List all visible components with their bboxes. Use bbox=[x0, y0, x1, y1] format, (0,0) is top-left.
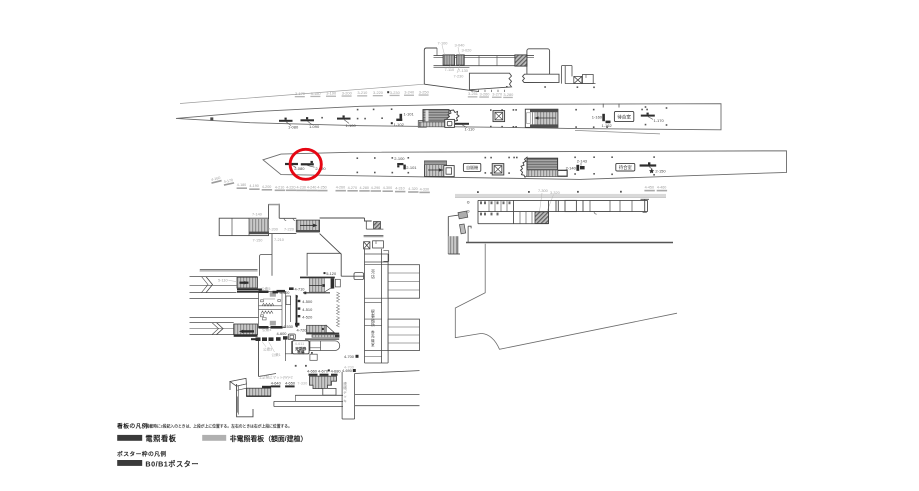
svg-text:4-260: 4-260 bbox=[336, 186, 345, 190]
svg-text:自販機: 自販機 bbox=[466, 164, 478, 170]
svg-text:4-300: 4-300 bbox=[383, 186, 392, 190]
svg-text:5-110: 5-110 bbox=[218, 278, 228, 283]
svg-text:7-110: 7-110 bbox=[445, 67, 455, 72]
svg-text:7-140: 7-140 bbox=[252, 212, 263, 217]
svg-text:非電照看板（額面/建植）: 非電照看板（額面/建植） bbox=[230, 434, 308, 443]
svg-text:4-330: 4-330 bbox=[420, 187, 429, 191]
svg-text:3-180: 3-180 bbox=[311, 91, 322, 96]
svg-text:売店: 売店 bbox=[371, 268, 375, 279]
svg-text:ポスター枠の凡例: ポスター枠の凡例 bbox=[117, 450, 167, 458]
svg-text:4-190: 4-190 bbox=[249, 184, 258, 188]
svg-text:3-170: 3-170 bbox=[295, 91, 306, 96]
svg-text:1-101: 1-101 bbox=[404, 112, 415, 117]
svg-text:4-720: 4-720 bbox=[297, 327, 308, 332]
svg-text:7-130: 7-130 bbox=[458, 68, 469, 73]
svg-text:公衆3: 公衆3 bbox=[263, 347, 272, 352]
svg-text:4-230: 4-230 bbox=[297, 185, 306, 189]
svg-text:4-450: 4-450 bbox=[645, 186, 654, 190]
svg-text:4-270: 4-270 bbox=[348, 186, 357, 190]
svg-text:4-500: 4-500 bbox=[302, 299, 313, 304]
svg-text:3-280: 3-280 bbox=[503, 92, 514, 97]
svg-text:連絡デッキ: 連絡デッキ bbox=[343, 381, 347, 403]
svg-text:待合室: 待合室 bbox=[617, 114, 631, 121]
svg-text:2-150: 2-150 bbox=[655, 169, 666, 174]
svg-text:3-190: 3-190 bbox=[326, 91, 337, 96]
svg-text:1-080: 1-080 bbox=[288, 125, 299, 130]
svg-text:1-170: 1-170 bbox=[654, 118, 665, 123]
svg-text:4-200: 4-200 bbox=[262, 185, 271, 189]
svg-text:7-150: 7-150 bbox=[253, 237, 264, 242]
svg-text:看板の凡例: 看板の凡例 bbox=[117, 422, 148, 430]
svg-text:4-710: 4-710 bbox=[295, 286, 306, 291]
svg-text:券売機室: 券売機室 bbox=[371, 330, 375, 348]
svg-text:7-200: 7-200 bbox=[268, 227, 279, 232]
svg-text:2-140: 2-140 bbox=[566, 166, 577, 171]
svg-text:4-280: 4-280 bbox=[360, 186, 369, 190]
svg-text:3-251: 3-251 bbox=[468, 91, 478, 96]
svg-text:4-310: 4-310 bbox=[395, 187, 404, 191]
svg-text:7-230: 7-230 bbox=[454, 74, 465, 79]
svg-text:7-210: 7-210 bbox=[274, 237, 285, 242]
svg-text:3-210: 3-210 bbox=[357, 90, 368, 95]
svg-text:4-660 4-670: 4-660 4-670 bbox=[307, 368, 329, 373]
svg-text:1-100: 1-100 bbox=[346, 123, 357, 128]
svg-text:1-110: 1-110 bbox=[465, 126, 476, 131]
svg-text:2-101: 2-101 bbox=[406, 165, 417, 170]
svg-text:B0/B1ポスター: B0/B1ポスター bbox=[145, 459, 199, 468]
svg-text:3-270: 3-270 bbox=[492, 92, 503, 97]
svg-text:待合室: 待合室 bbox=[619, 164, 633, 171]
svg-text:4-240: 4-240 bbox=[307, 186, 316, 190]
svg-text:4-680: 4-680 bbox=[331, 368, 342, 373]
svg-text:2-080: 2-080 bbox=[294, 166, 305, 171]
svg-text:公衆1: 公衆1 bbox=[272, 352, 281, 357]
svg-text:公衆5: 公衆5 bbox=[261, 286, 270, 291]
svg-text:2-143: 2-143 bbox=[577, 158, 588, 163]
svg-text:2-100: 2-100 bbox=[394, 156, 405, 161]
svg-text:土足禁止マット(W)×2: 土足禁止マット(W)×2 bbox=[259, 375, 293, 380]
svg-text:掲載時に2段記入のときは、上段が上に位置する。左右のときは右: 掲載時に2段記入のときは、上段が上に位置する。左右のときは右が上段に位置する。 bbox=[145, 423, 292, 428]
svg-text:4-650: 4-650 bbox=[285, 381, 296, 386]
svg-text:4-210: 4-210 bbox=[275, 185, 284, 189]
svg-text:4-520: 4-520 bbox=[302, 314, 313, 319]
svg-text:7-220: 7-220 bbox=[284, 227, 295, 232]
svg-text:1-160: 1-160 bbox=[592, 114, 603, 119]
svg-text:1-162: 1-162 bbox=[602, 123, 613, 128]
svg-text:3-260: 3-260 bbox=[480, 91, 491, 96]
svg-text:4-510: 4-510 bbox=[302, 307, 313, 312]
svg-text:4-290: 4-290 bbox=[371, 186, 380, 190]
svg-text:3-240: 3-240 bbox=[404, 90, 415, 95]
svg-text:4-640: 4-640 bbox=[271, 381, 282, 386]
svg-text:3-200: 3-200 bbox=[342, 90, 353, 95]
svg-text:4-700: 4-700 bbox=[344, 354, 355, 359]
svg-text:4-611: 4-611 bbox=[295, 342, 304, 346]
svg-text:5-120: 5-120 bbox=[326, 271, 337, 276]
svg-text:7-100: 7-100 bbox=[438, 40, 449, 45]
svg-text:電照看板: 電照看板 bbox=[145, 434, 176, 443]
svg-text:駅事務所: 駅事務所 bbox=[371, 310, 375, 327]
svg-text:4-400: 4-400 bbox=[280, 290, 291, 295]
svg-text:7-330: 7-330 bbox=[297, 381, 308, 386]
svg-text:3-020: 3-020 bbox=[462, 47, 473, 52]
svg-text:4-220: 4-220 bbox=[286, 185, 295, 189]
svg-text:7-300: 7-300 bbox=[538, 189, 548, 193]
svg-text:3-230: 3-230 bbox=[390, 90, 401, 95]
svg-text:3-250: 3-250 bbox=[419, 89, 430, 94]
svg-text:4-320: 4-320 bbox=[408, 187, 417, 191]
svg-text:4-180: 4-180 bbox=[237, 183, 246, 187]
svg-text:4-690: 4-690 bbox=[342, 368, 353, 373]
svg-text:4-460: 4-460 bbox=[657, 186, 666, 190]
svg-text:3-320: 3-320 bbox=[550, 191, 560, 195]
svg-text:1-102: 1-102 bbox=[394, 122, 405, 127]
svg-text:4-600: 4-600 bbox=[277, 331, 288, 336]
svg-text:1-090: 1-090 bbox=[309, 124, 320, 129]
svg-text:3-220: 3-220 bbox=[373, 90, 384, 95]
svg-text:4-250: 4-250 bbox=[317, 186, 326, 190]
svg-text:4-530: 4-530 bbox=[283, 324, 294, 329]
